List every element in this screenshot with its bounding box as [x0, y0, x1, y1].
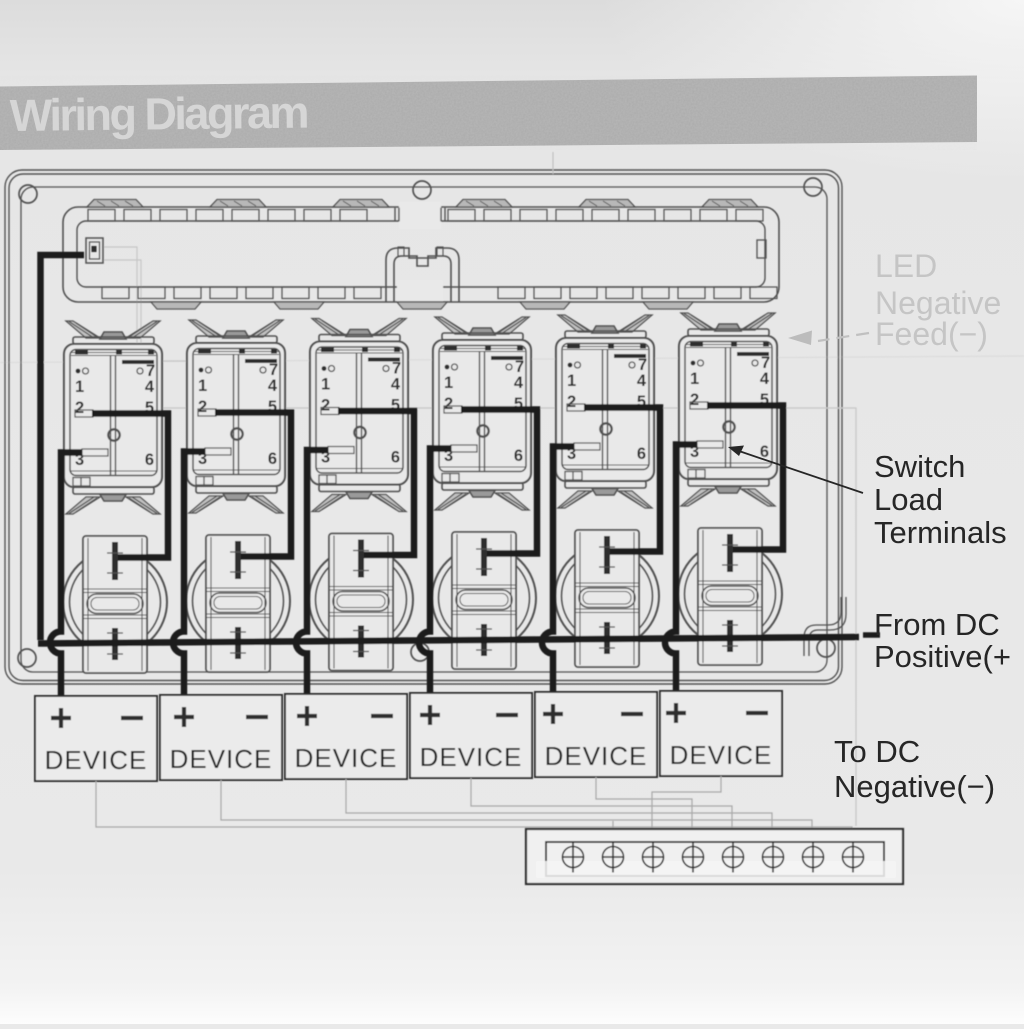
svg-text:DEVICE: DEVICE	[170, 744, 273, 774]
svg-text:4: 4	[145, 378, 155, 396]
svg-text:1: 1	[567, 372, 576, 390]
svg-text:2: 2	[198, 398, 207, 416]
svg-text:Load: Load	[874, 482, 943, 517]
svg-text:1: 1	[444, 374, 453, 392]
svg-text:From DC: From DC	[874, 607, 1000, 642]
svg-text:6: 6	[268, 450, 277, 468]
svg-text:4: 4	[514, 374, 524, 392]
svg-text:6: 6	[514, 447, 523, 465]
svg-text:1: 1	[690, 370, 699, 388]
svg-text:6: 6	[145, 451, 154, 469]
svg-text:DEVICE: DEVICE	[545, 741, 648, 771]
svg-text:2: 2	[690, 391, 699, 409]
svg-text:DEVICE: DEVICE	[670, 740, 773, 770]
svg-text:6: 6	[391, 449, 400, 467]
svg-text:4: 4	[637, 372, 647, 390]
svg-text:Feed(−): Feed(−)	[875, 316, 988, 352]
svg-text:4: 4	[268, 377, 278, 395]
svg-text:1: 1	[75, 378, 84, 396]
svg-text:1: 1	[321, 376, 330, 394]
svg-text:DEVICE: DEVICE	[295, 743, 398, 773]
svg-text:LED: LED	[875, 248, 937, 284]
svg-text:4: 4	[760, 370, 770, 388]
svg-text:DEVICE: DEVICE	[45, 745, 148, 775]
svg-text:Positive(+: Positive(+	[874, 639, 1011, 674]
svg-text:Terminals: Terminals	[874, 515, 1007, 550]
svg-text:6: 6	[637, 445, 646, 463]
svg-text:2: 2	[75, 399, 84, 417]
svg-text:2: 2	[444, 395, 453, 413]
svg-text:Negative(−): Negative(−)	[834, 769, 995, 804]
svg-text:To DC: To DC	[834, 734, 920, 769]
svg-text:2: 2	[567, 393, 576, 411]
svg-text:4: 4	[391, 376, 401, 394]
svg-text:2: 2	[321, 397, 330, 415]
svg-text:Switch: Switch	[874, 449, 965, 484]
svg-text:Wiring Diagram: Wiring Diagram	[10, 87, 308, 141]
svg-text:DEVICE: DEVICE	[420, 742, 523, 772]
svg-text:1: 1	[198, 377, 207, 395]
